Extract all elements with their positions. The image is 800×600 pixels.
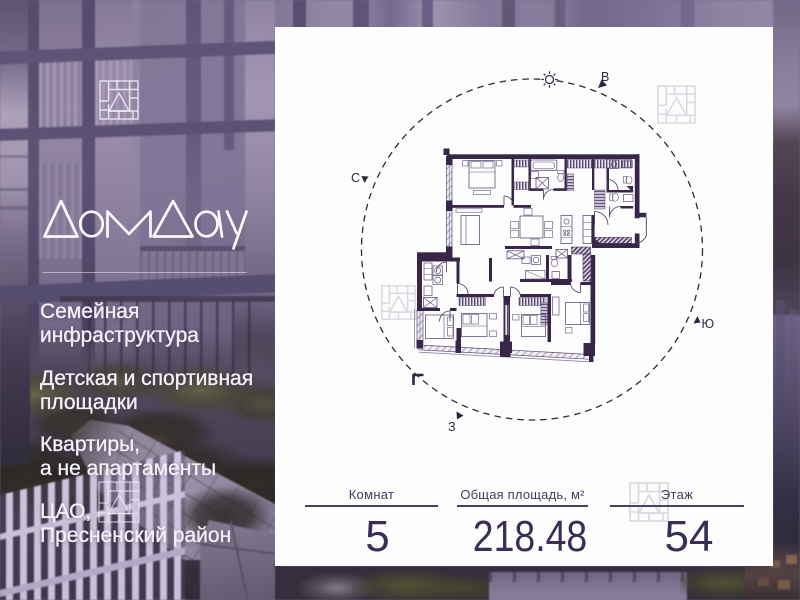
svg-text:Ю: Ю: [702, 317, 715, 331]
svg-text:С: С: [351, 171, 360, 185]
svg-text:З: З: [448, 420, 456, 434]
